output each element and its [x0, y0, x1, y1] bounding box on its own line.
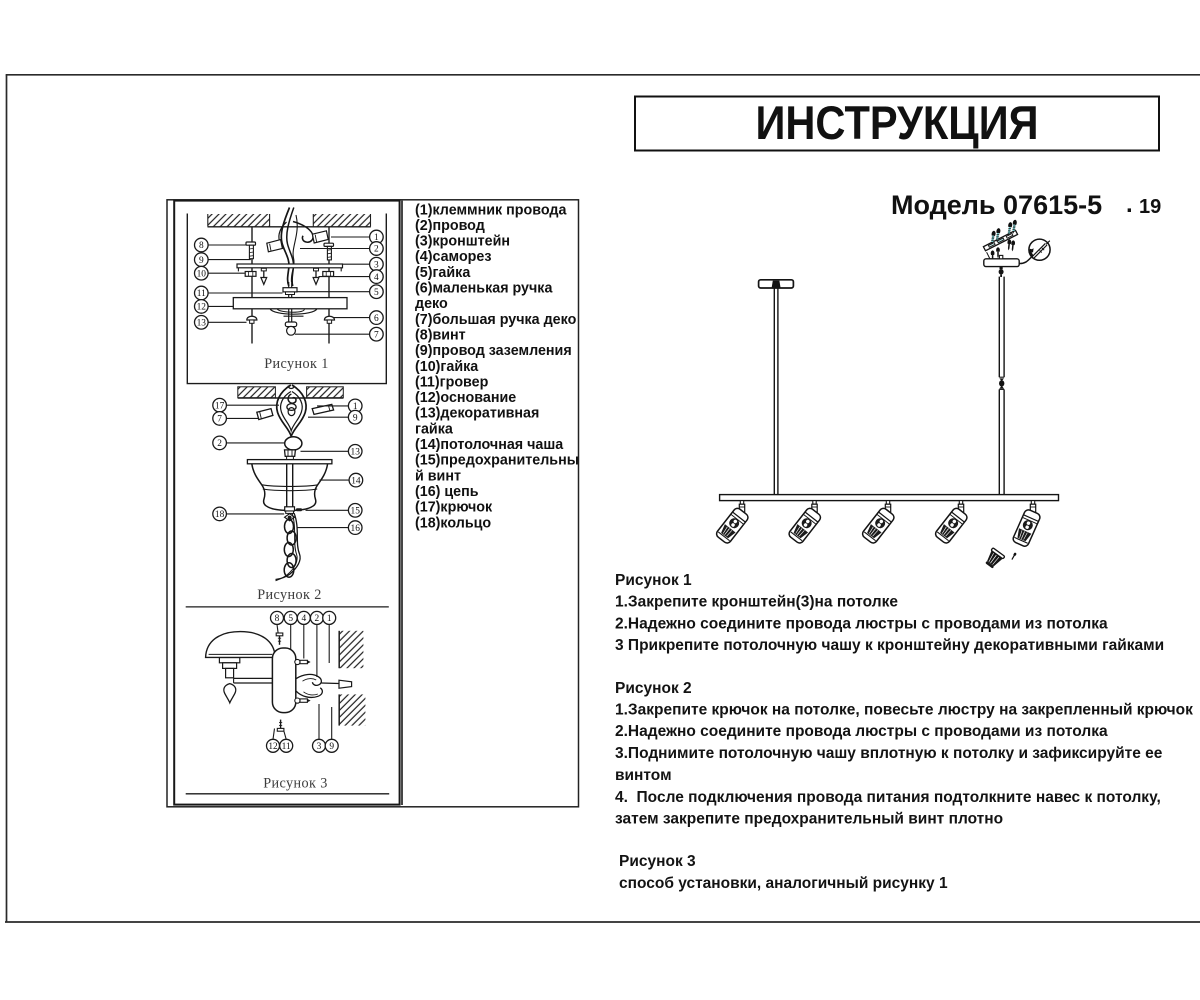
svg-text:5: 5: [288, 614, 293, 624]
svg-text:(7)большая ручка деко: (7)большая ручка деко: [415, 312, 577, 328]
svg-text:гайка: гайка: [415, 421, 454, 437]
svg-text:(8)винт: (8)винт: [415, 328, 466, 344]
svg-text:4. После подключения провода: 4. После подключения провода питания под…: [615, 789, 1161, 806]
svg-text:Модель 07615-5: Модель 07615-5: [891, 190, 1102, 220]
svg-text:7: 7: [217, 415, 222, 425]
svg-text:затем закрепите предохранитель: затем закрепите предохранительный винт п…: [615, 811, 1003, 828]
svg-text:1: 1: [327, 614, 332, 624]
svg-text:(11)гровер: (11)гровер: [415, 374, 489, 390]
svg-text:1: 1: [353, 402, 358, 412]
svg-text:Рисунок 3: Рисунок 3: [263, 776, 328, 792]
svg-text:8: 8: [199, 241, 204, 251]
svg-text:10: 10: [197, 269, 207, 279]
svg-text:6: 6: [374, 314, 379, 324]
svg-text:13: 13: [351, 448, 361, 458]
svg-text:(14)потолочная чаша: (14)потолочная чаша: [415, 437, 564, 453]
svg-text:Рисунок 3: Рисунок 3: [619, 853, 696, 870]
svg-text:Рисунок 2: Рисунок 2: [257, 587, 322, 603]
svg-text:Рисунок 1: Рисунок 1: [615, 572, 692, 589]
svg-text:14: 14: [351, 476, 361, 486]
svg-text:19: 19: [1139, 196, 1161, 218]
svg-text:винтом: винтом: [615, 767, 672, 784]
svg-text:й винт: й винт: [415, 468, 461, 484]
svg-text:Рисунок 2: Рисунок 2: [615, 680, 692, 697]
svg-text:15: 15: [351, 507, 361, 517]
svg-text:(18)кольцо: (18)кольцо: [415, 515, 491, 531]
svg-text:4: 4: [374, 273, 379, 283]
svg-text:5: 5: [374, 288, 379, 298]
svg-text:ИНСТРУКЦИЯ: ИНСТРУКЦИЯ: [756, 96, 1039, 149]
svg-text:(5)гайка: (5)гайка: [415, 265, 471, 281]
svg-text:(10)гайка: (10)гайка: [415, 359, 479, 375]
svg-text:16: 16: [351, 524, 361, 534]
svg-text:(9)провод заземления: (9)провод заземления: [415, 343, 572, 359]
svg-text:(1)клеммник провода: (1)клеммник провода: [415, 202, 567, 218]
svg-text:8: 8: [275, 614, 280, 624]
svg-text:3 Прикрепите потолочную чашу к: 3 Прикрепите потолочную чашу к кронштейн…: [615, 637, 1164, 654]
svg-text:12: 12: [268, 742, 278, 752]
svg-text:9: 9: [199, 256, 204, 266]
svg-text:11: 11: [197, 289, 206, 299]
svg-text:3: 3: [317, 742, 322, 752]
svg-text:2: 2: [374, 245, 379, 255]
svg-text:11: 11: [282, 742, 291, 752]
svg-text:18: 18: [215, 510, 225, 520]
svg-text:(12)основание: (12)основание: [415, 390, 516, 406]
svg-text:1: 1: [374, 233, 379, 243]
svg-text:4: 4: [301, 614, 306, 624]
svg-text:9: 9: [329, 742, 334, 752]
svg-text:(13)декоративная: (13)декоративная: [415, 406, 539, 422]
svg-text:1.Закрепите крючок на потолке,: 1.Закрепите крючок на потолке, повесьте …: [615, 702, 1193, 719]
svg-text:12: 12: [197, 303, 207, 313]
svg-text:(16) цепь: (16) цепь: [415, 484, 479, 500]
svg-text:2.Надежно соедините провода лю: 2.Надежно соедините провода люстры с про…: [615, 723, 1108, 740]
svg-text:деко: деко: [415, 296, 448, 312]
svg-text:7: 7: [374, 330, 379, 340]
svg-text:2: 2: [217, 439, 222, 449]
svg-text:способ установки, аналогичный: способ установки, аналогичный рисунку 1: [619, 875, 948, 892]
svg-text:13: 13: [197, 319, 207, 329]
svg-text:2.Надежно соедините провода лю: 2.Надежно соедините провода люстры с про…: [615, 616, 1108, 633]
svg-text:17: 17: [215, 401, 225, 411]
svg-text:9: 9: [353, 413, 358, 423]
svg-text:(2)провод: (2)провод: [415, 218, 485, 234]
svg-text:(4)саморез: (4)саморез: [415, 249, 491, 265]
svg-text:(17)крючок: (17)крючок: [415, 500, 493, 516]
svg-text:(6)маленькая ручка: (6)маленькая ручка: [415, 281, 553, 297]
svg-text:(3)кронштейн: (3)кронштейн: [415, 234, 510, 250]
svg-text:(15)предохранительны: (15)предохранительны: [415, 453, 579, 469]
svg-text:Рисунок 1: Рисунок 1: [264, 356, 329, 372]
svg-text:2: 2: [315, 614, 320, 624]
svg-text:1.Закрепите кронштейн(3)на пот: 1.Закрепите кронштейн(3)на потолке: [615, 594, 898, 611]
svg-text:.: .: [1126, 191, 1133, 218]
svg-text:3.Поднимите потолочную чашу вп: 3.Поднимите потолочную чашу вплотную к п…: [615, 745, 1163, 762]
svg-text:3: 3: [374, 260, 379, 270]
